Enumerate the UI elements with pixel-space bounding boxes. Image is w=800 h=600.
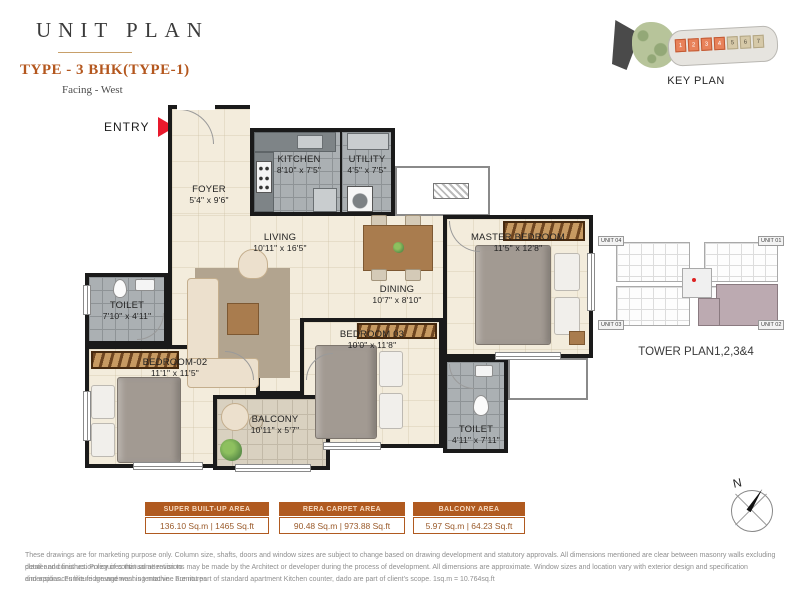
washing-machine-icon bbox=[347, 186, 373, 212]
toilet1-basin-icon bbox=[135, 279, 155, 291]
unit-type-label: TYPE - 3 BHK(TYPE-1) bbox=[20, 62, 190, 79]
dining-chair-icon bbox=[405, 269, 421, 281]
ac-unit-hatch bbox=[433, 183, 469, 199]
keyplan-building-highlighted: 2 bbox=[688, 38, 700, 52]
keyplan-building: 6 bbox=[740, 35, 752, 49]
bedroom03-label: BEDROOM 0310'0" x 11'8" bbox=[340, 329, 404, 351]
super-built-up-area-table: SUPER BUILT-UP AREA 136.10 Sq.m | 1465 S… bbox=[145, 502, 269, 534]
master-bed-icon bbox=[475, 245, 551, 345]
window bbox=[235, 464, 311, 472]
toilet1-label: TOILET7'10" x 4'11" bbox=[103, 300, 152, 322]
tower-wing bbox=[616, 286, 690, 326]
kitchen-counter-top bbox=[254, 132, 336, 152]
window bbox=[133, 462, 203, 470]
page-title: UNIT PLAN bbox=[36, 18, 209, 43]
tower-entry-dot bbox=[692, 278, 696, 282]
keyplan-building-highlighted: 3 bbox=[701, 37, 713, 51]
area-table-value: 5.97 Sq.m | 64.23 Sq.ft bbox=[413, 517, 525, 534]
key-plan-label: KEY PLAN bbox=[612, 75, 780, 87]
tower-core bbox=[682, 268, 712, 298]
compass-north-label: N bbox=[732, 475, 743, 490]
tower-wing bbox=[616, 242, 690, 282]
keyplan-building: 5 bbox=[727, 36, 739, 50]
bedroom02-bed-icon bbox=[117, 377, 181, 463]
master-pillow-icon bbox=[554, 297, 580, 335]
dining-chair-icon bbox=[371, 269, 387, 281]
bedroom03-pillow-icon bbox=[379, 351, 403, 387]
window bbox=[495, 352, 561, 360]
utility-label: UTILITY4'5" x 7'5" bbox=[347, 154, 386, 176]
balcony-chair-icon bbox=[221, 403, 249, 431]
tower-plan: UNIT 04 UNIT 01 UNIT 03 UNIT 02 bbox=[598, 228, 794, 336]
keyplan-building: 7 bbox=[753, 35, 765, 49]
bedroom02-label: BEDROOM-0211'1" x 11'5" bbox=[143, 357, 208, 379]
keyplan-building-highlighted: 1 bbox=[675, 39, 687, 53]
entry-door-gap bbox=[177, 104, 215, 110]
balcony-plant-icon bbox=[220, 439, 242, 461]
facing-label: Facing - West bbox=[62, 84, 123, 96]
keyplan-building-highlighted: 4 bbox=[714, 37, 726, 51]
area-table-value: 90.48 Sq.m | 973.88 Sq.ft bbox=[279, 517, 405, 534]
living-label: LIVING10'11" x 16'5" bbox=[253, 232, 307, 254]
tower-unit-label-04: UNIT 04 bbox=[598, 236, 624, 246]
tower-unit-label-01: UNIT 01 bbox=[758, 236, 784, 246]
tower-unit-label-02: UNIT 02 bbox=[758, 320, 784, 330]
toilet2-label: TOILET4'11" x 7'11" bbox=[452, 424, 500, 446]
bedroom02-pillow-icon bbox=[91, 423, 115, 457]
rera-carpet-area-table: RERA CARPET AREA 90.48 Sq.m | 973.88 Sq.… bbox=[279, 502, 405, 534]
toilet2-wc-icon bbox=[473, 395, 489, 416]
table-plant-icon bbox=[393, 242, 404, 253]
disclaimer-line: and appliances like fridge and washing m… bbox=[25, 574, 777, 586]
foyer-label: FOYER5'4" x 9'6" bbox=[189, 184, 228, 206]
balcony-label: BALCONY10'11" x 5'7" bbox=[251, 414, 300, 436]
master-bedroom-label: MASTER BEDROOM11'5" x 12'8" bbox=[471, 232, 565, 254]
compass-icon: N bbox=[726, 476, 778, 544]
tower-wing bbox=[704, 242, 778, 282]
tower-unit-highlight bbox=[698, 298, 720, 326]
area-table-header: SUPER BUILT-UP AREA bbox=[145, 502, 269, 516]
bedroom02-pillow-icon bbox=[91, 385, 115, 419]
coffee-table-icon bbox=[227, 303, 259, 335]
utility-sink-icon bbox=[347, 133, 389, 150]
area-table-value: 136.10 Sq.m | 1465 Sq.ft bbox=[145, 517, 269, 534]
window bbox=[83, 391, 91, 441]
ac-ledge-bottom bbox=[508, 358, 588, 400]
toilet1-wc-icon bbox=[113, 279, 127, 298]
window bbox=[323, 442, 381, 450]
unit-plan-page: { "header": { "title": "UNIT PLAN", "typ… bbox=[0, 0, 800, 600]
floor-plan: FOYER5'4" x 9'6" KITCHEN8'10" x 7'5" UTI… bbox=[75, 103, 595, 490]
title-underline bbox=[58, 52, 132, 53]
balcony-area-table: BALCONY AREA 5.97 Sq.m | 64.23 Sq.ft bbox=[413, 502, 525, 534]
window bbox=[83, 285, 91, 315]
toilet2-basin-icon bbox=[475, 365, 493, 377]
key-plan: 1 2 3 4 5 6 7 bbox=[612, 16, 780, 74]
area-table-header: RERA CARPET AREA bbox=[279, 502, 405, 516]
kitchen-label: KITCHEN8'10" x 7'5" bbox=[277, 154, 321, 176]
stove-icon bbox=[256, 161, 272, 193]
master-pillow-icon bbox=[554, 253, 580, 291]
kitchen-cabinet bbox=[313, 188, 337, 212]
kitchen-sink-icon bbox=[297, 135, 323, 149]
bedroom03-pillow-icon bbox=[379, 393, 403, 429]
area-table-header: BALCONY AREA bbox=[413, 502, 525, 516]
tower-plan-label: TOWER PLAN1,2,3&4 bbox=[598, 346, 794, 358]
tower-unit-label-03: UNIT 03 bbox=[598, 320, 624, 330]
dining-label: DINING10'7" x 8'10" bbox=[372, 284, 421, 306]
master-side-table bbox=[569, 331, 585, 345]
window bbox=[587, 253, 595, 311]
